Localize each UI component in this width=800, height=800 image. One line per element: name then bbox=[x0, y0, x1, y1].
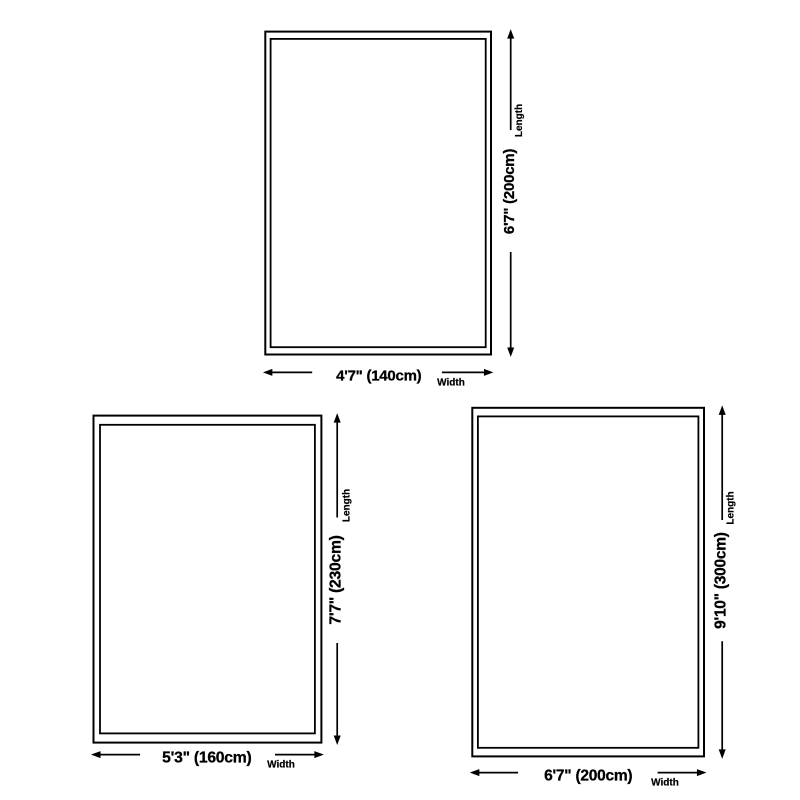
svg-text:Length: Length bbox=[726, 491, 737, 524]
svg-text:Width: Width bbox=[267, 760, 295, 771]
svg-text:5'3" (160cm): 5'3" (160cm) bbox=[162, 750, 251, 767]
svg-text:Width: Width bbox=[437, 377, 465, 388]
svg-text:9'10" (300cm): 9'10" (300cm) bbox=[712, 532, 729, 629]
svg-text:6'7" (200cm): 6'7" (200cm) bbox=[501, 149, 518, 234]
svg-text:Width: Width bbox=[651, 778, 679, 789]
svg-text:4'7" (140cm): 4'7" (140cm) bbox=[336, 367, 421, 384]
svg-text:Length: Length bbox=[514, 104, 525, 137]
svg-text:7'7" (230cm): 7'7" (230cm) bbox=[327, 535, 344, 624]
svg-text:6'7" (200cm): 6'7" (200cm) bbox=[544, 768, 632, 785]
svg-text:Length: Length bbox=[342, 489, 353, 522]
